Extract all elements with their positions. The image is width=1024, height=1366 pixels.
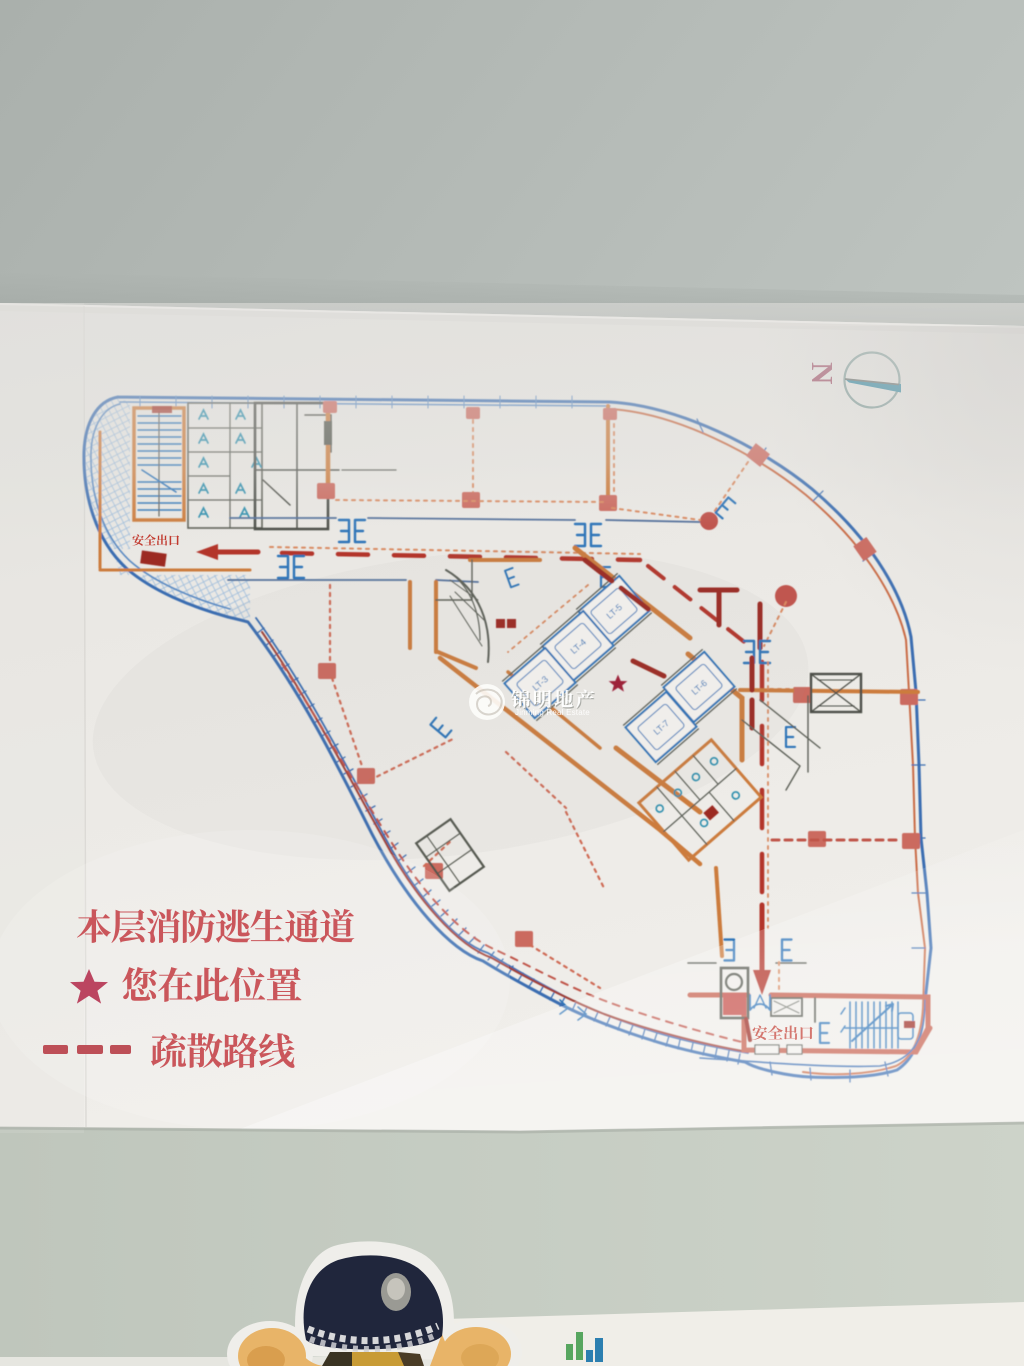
svg-text:Jinming Real Estate: Jinming Real Estate bbox=[515, 708, 590, 717]
